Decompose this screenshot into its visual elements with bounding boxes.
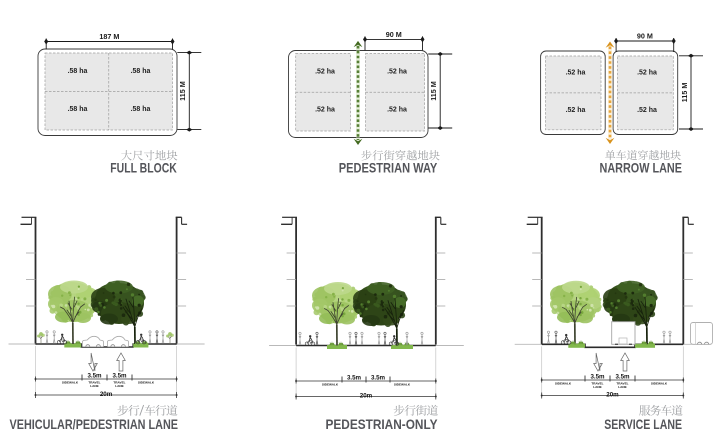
svg-text:NARROW LANE: NARROW LANE bbox=[600, 161, 683, 176]
svg-text:SIDEWALK: SIDEWALK bbox=[555, 382, 572, 386]
svg-text:.52 ha: .52 ha bbox=[566, 107, 586, 114]
svg-text:SERVICE LANE: SERVICE LANE bbox=[604, 417, 682, 432]
svg-text:.52 ha: .52 ha bbox=[315, 107, 335, 114]
svg-text:20m: 20m bbox=[606, 392, 619, 399]
svg-text:VEHICULAR/PEDESTRIAN LANE: VEHICULAR/PEDESTRIAN LANE bbox=[10, 417, 179, 432]
svg-text:3.5m: 3.5m bbox=[371, 374, 386, 381]
svg-text:.58 ha: .58 ha bbox=[68, 68, 88, 75]
svg-text:SIDEWALK: SIDEWALK bbox=[62, 381, 79, 385]
svg-text:LANE: LANE bbox=[115, 384, 123, 388]
svg-text:3.5m: 3.5m bbox=[112, 372, 127, 379]
svg-text:.52 ha: .52 ha bbox=[637, 70, 657, 77]
svg-text:3.5m: 3.5m bbox=[347, 374, 362, 381]
svg-text:20m: 20m bbox=[100, 391, 113, 398]
svg-text:20m: 20m bbox=[360, 393, 373, 400]
svg-text:.52 ha: .52 ha bbox=[387, 69, 407, 76]
svg-text:SIDEWALK: SIDEWALK bbox=[138, 381, 155, 385]
svg-text:SIDEWALK: SIDEWALK bbox=[322, 383, 339, 387]
svg-text:PEDESTRIAN WAY: PEDESTRIAN WAY bbox=[339, 161, 438, 176]
svg-text:SIDEWALK: SIDEWALK bbox=[394, 383, 411, 387]
svg-text:3.5m: 3.5m bbox=[590, 373, 605, 380]
svg-text:LANE: LANE bbox=[90, 384, 98, 388]
svg-text:.58 ha: .58 ha bbox=[68, 106, 88, 113]
svg-text:3.5m: 3.5m bbox=[615, 373, 630, 380]
svg-text:115 M: 115 M bbox=[178, 81, 187, 101]
svg-text:FULL BLOCK: FULL BLOCK bbox=[110, 161, 177, 176]
svg-text:.58 ha: .58 ha bbox=[131, 106, 151, 113]
svg-text:SIDEWALK: SIDEWALK bbox=[651, 382, 668, 386]
svg-text:90 M: 90 M bbox=[637, 31, 653, 40]
svg-text:187 M: 187 M bbox=[99, 32, 119, 41]
svg-text:90 M: 90 M bbox=[386, 30, 402, 39]
svg-text:.52 ha: .52 ha bbox=[566, 70, 586, 77]
svg-text:PEDESTRIAN-ONLY: PEDESTRIAN-ONLY bbox=[326, 417, 438, 432]
svg-text:LANE: LANE bbox=[618, 385, 626, 389]
svg-text:115 M: 115 M bbox=[429, 81, 438, 101]
svg-text:.52 ha: .52 ha bbox=[387, 107, 407, 114]
svg-text:LANE: LANE bbox=[593, 385, 601, 389]
svg-text:3.5m: 3.5m bbox=[87, 372, 102, 379]
svg-text:.52 ha: .52 ha bbox=[637, 107, 657, 114]
svg-text:.58 ha: .58 ha bbox=[131, 68, 151, 75]
svg-text:.52 ha: .52 ha bbox=[315, 69, 335, 76]
svg-text:115 M: 115 M bbox=[680, 83, 689, 103]
